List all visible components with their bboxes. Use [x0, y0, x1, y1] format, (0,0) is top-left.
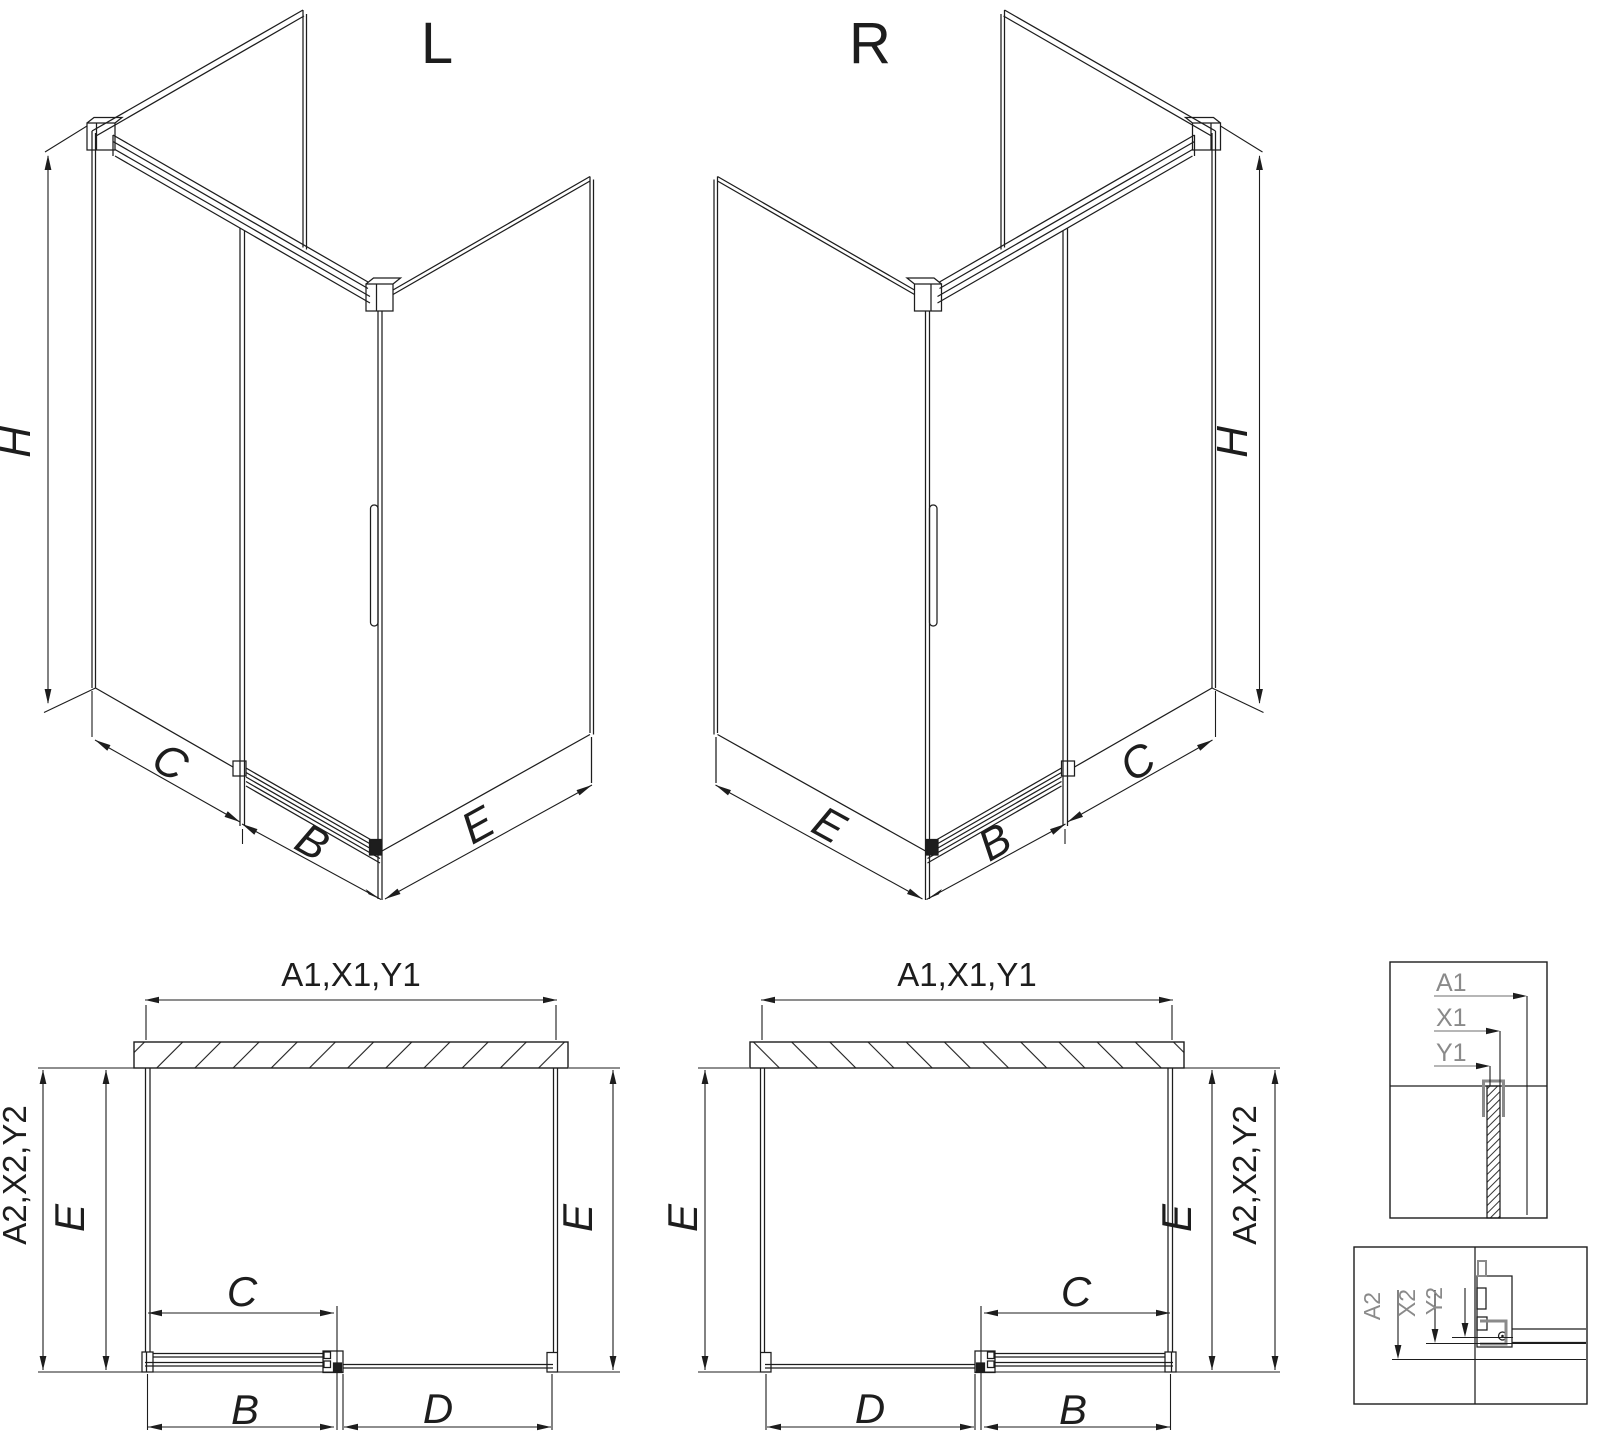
- plan-right-depth-label: A2,X2,Y2: [1226, 1105, 1263, 1244]
- detail-bottom-y2: Y2: [1421, 1287, 1447, 1315]
- iso-view-left-geometry: [44, 10, 594, 900]
- plan-right-c: C: [1061, 1268, 1092, 1315]
- dim-label-b-left: B: [287, 814, 337, 871]
- detail-bottom-a2: A2: [1359, 1292, 1385, 1320]
- plan-right-d: D: [855, 1385, 885, 1432]
- view-title-right: R: [849, 11, 891, 76]
- dim-label-e-right: E: [804, 797, 854, 854]
- shower-enclosure-diagram: L H C B E R H C B E A1,X1,Y1 A2,X2,Y2 E …: [0, 0, 1600, 1438]
- detail-view-top: [1390, 962, 1547, 1218]
- view-title-left: L: [421, 11, 453, 76]
- plan-right-width-label: A1,X1,Y1: [897, 956, 1036, 993]
- plan-left-e-left: E: [46, 1203, 93, 1232]
- dim-label-b-right: B: [970, 814, 1020, 871]
- plan-right-b: B: [1059, 1386, 1087, 1433]
- detail-bottom-x2: X2: [1394, 1289, 1420, 1317]
- plan-left-e-right: E: [554, 1203, 601, 1232]
- plan-right-e-left: E: [659, 1203, 706, 1232]
- dim-label-height-left: H: [0, 426, 40, 458]
- detail-view-bottom: [1354, 1247, 1587, 1404]
- plan-right-e-right: E: [1153, 1203, 1200, 1232]
- plan-left-b: B: [231, 1386, 259, 1433]
- dim-label-height-right: H: [1208, 426, 1257, 458]
- detail-top-x1: X1: [1436, 1004, 1467, 1032]
- drawing-sheet: L H C B E R H C B E A1,X1,Y1 A2,X2,Y2 E …: [0, 0, 1600, 1438]
- plan-left-d: D: [423, 1385, 453, 1432]
- plan-view-left-geometry: [38, 997, 620, 1430]
- dim-label-e-left: E: [453, 796, 503, 853]
- plan-left-width-label: A1,X1,Y1: [281, 956, 420, 993]
- plan-left-depth-label: A2,X2,Y2: [0, 1105, 33, 1244]
- plan-left-c: C: [227, 1268, 258, 1315]
- detail-top-a1: A1: [1436, 969, 1467, 997]
- detail-top-y1: Y1: [1436, 1039, 1467, 1067]
- iso-view-right-geometry: [714, 10, 1264, 900]
